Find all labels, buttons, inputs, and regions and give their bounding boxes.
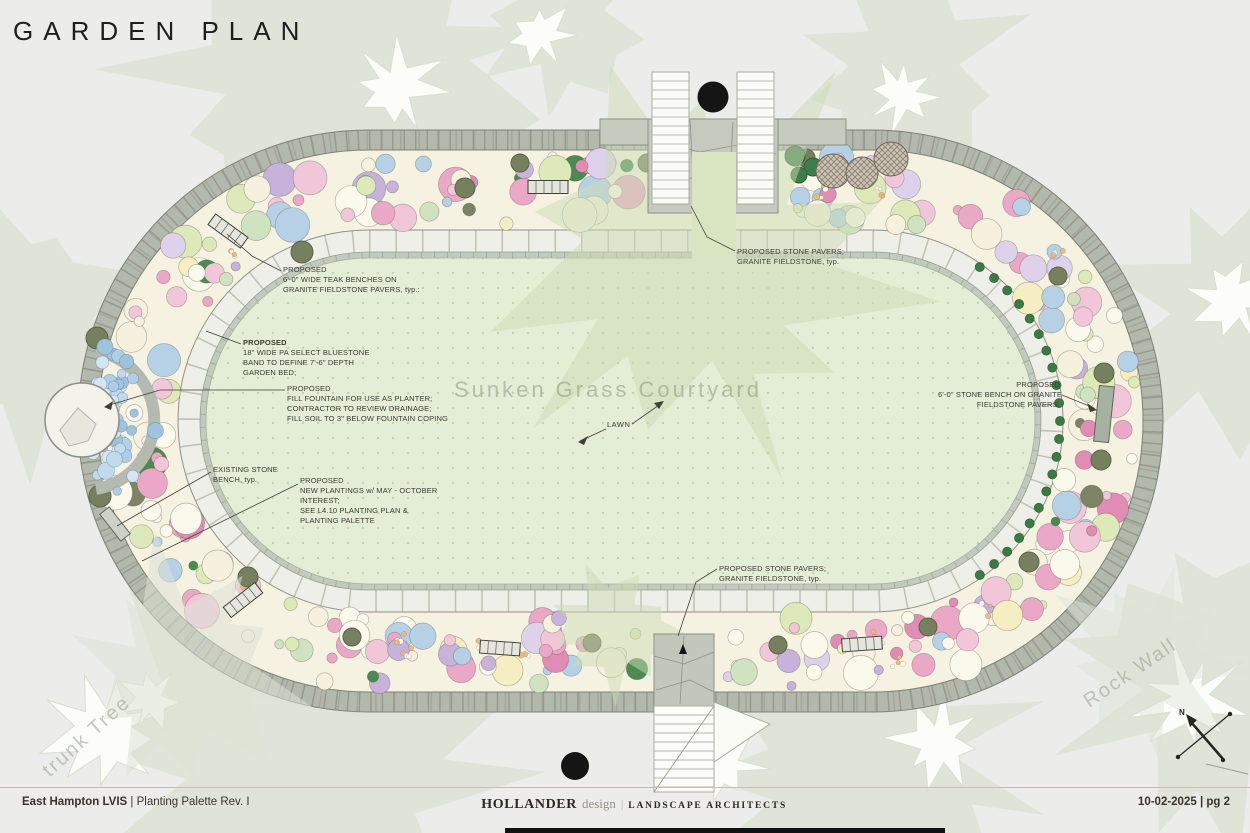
annotation-stone-bench-right: PROPOSED 6'-0" STONE BENCH ON GRANITE FI… [938, 380, 1060, 410]
existing-tree-symbol [561, 752, 589, 780]
footer-divider [0, 787, 1250, 788]
annotation-pavers-bottom: PROPOSED STONE PAVERS; GRANITE FIELDSTON… [719, 564, 826, 584]
title-block-footer: East Hampton LVIS | Planting Palette Rev… [0, 794, 1250, 814]
annotation-new-plantings: PROPOSED NEW PLANTINGS w/ MAY - OCTOBER … [300, 476, 437, 525]
existing-tree-symbol [698, 82, 729, 113]
north-label: N [1179, 708, 1185, 717]
lawn-label: LAWN [607, 420, 630, 429]
garden-plan-sheet: GARDEN PLAN Sunken Grass Courtyard LAWN … [0, 0, 1250, 833]
date-and-page: 10-02-2025 | pg 2 [1138, 796, 1230, 808]
garden-plan-drawing [0, 0, 1250, 833]
annotation-teak-benches: PROPOSED 6'-0" WIDE TEAK BENCHES ON GRAN… [283, 265, 420, 295]
page-title: GARDEN PLAN [13, 16, 309, 47]
annotation-fountain: PROPOSED FILL FOUNTAIN FOR USE AS PLANTE… [287, 384, 448, 424]
annotation-existing-bench: EXISTING STONE BENCH, typ. [213, 465, 278, 485]
firm-logo: HOLLANDERdesign|LANDSCAPE ARCHITECTS [481, 795, 787, 813]
sheet-edge-bar [505, 828, 945, 833]
project-name: East Hampton LVIS | Planting Palette Rev… [22, 796, 250, 808]
annotation-bluestone-band: PROPOSED 18" WIDE PA SELECT BLUESTONE BA… [243, 338, 370, 378]
courtyard-label: Sunken Grass Courtyard [428, 377, 788, 403]
annotation-pavers-top: PROPOSED STONE PAVERS; GRANITE FIELDSTON… [737, 247, 844, 267]
